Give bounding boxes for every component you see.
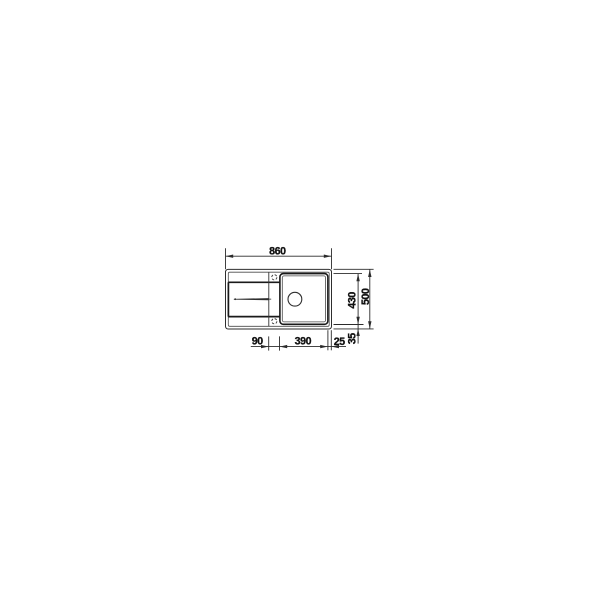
svg-text:390: 390 [295, 335, 312, 347]
svg-text:90: 90 [252, 335, 263, 347]
svg-text:35: 35 [347, 333, 359, 344]
svg-text:500: 500 [360, 288, 372, 305]
svg-text:860: 860 [269, 246, 286, 258]
svg-text:430: 430 [346, 292, 358, 309]
svg-text:25: 25 [334, 336, 345, 348]
